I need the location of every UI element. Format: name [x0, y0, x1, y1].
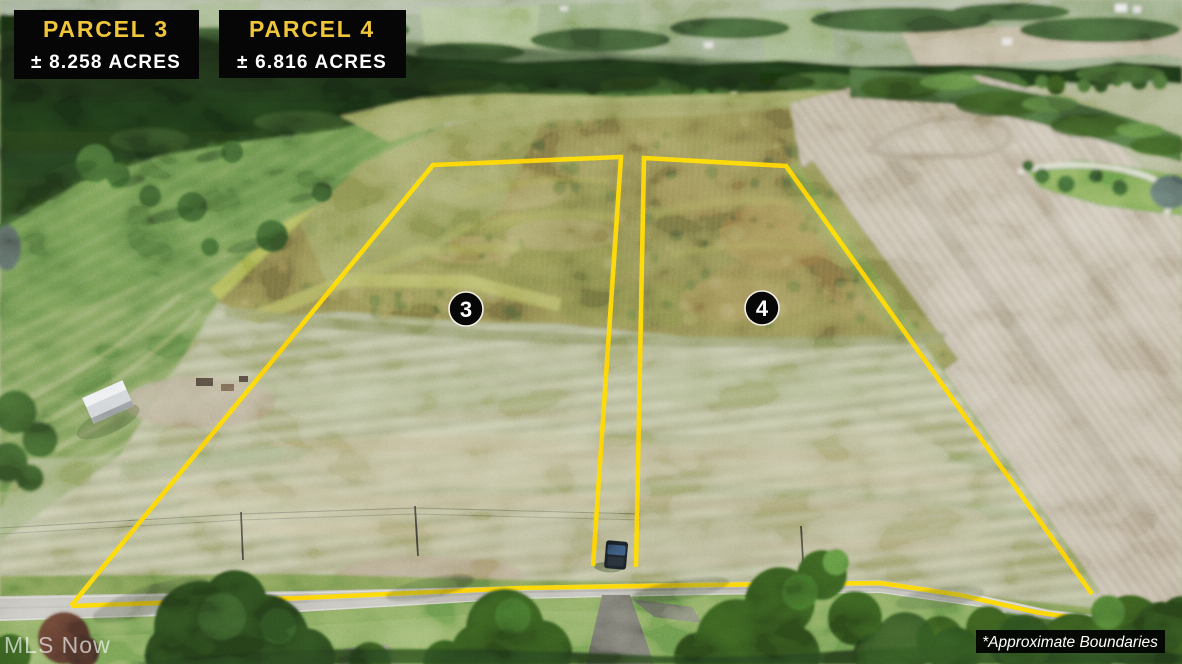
svg-text:*Approximate Boundaries: *Approximate Boundaries [982, 634, 1158, 651]
svg-text:± 8.258 ACRES: ± 8.258 ACRES [31, 52, 181, 73]
svg-text:± 6.816 ACRES: ± 6.816 ACRES [237, 52, 387, 73]
svg-text:PARCEL 4: PARCEL 4 [249, 16, 375, 42]
svg-text:4: 4 [756, 296, 769, 321]
svg-text:PARCEL 3: PARCEL 3 [43, 16, 169, 42]
svg-text:3: 3 [460, 297, 472, 322]
svg-text:MLS Now: MLS Now [4, 632, 111, 658]
